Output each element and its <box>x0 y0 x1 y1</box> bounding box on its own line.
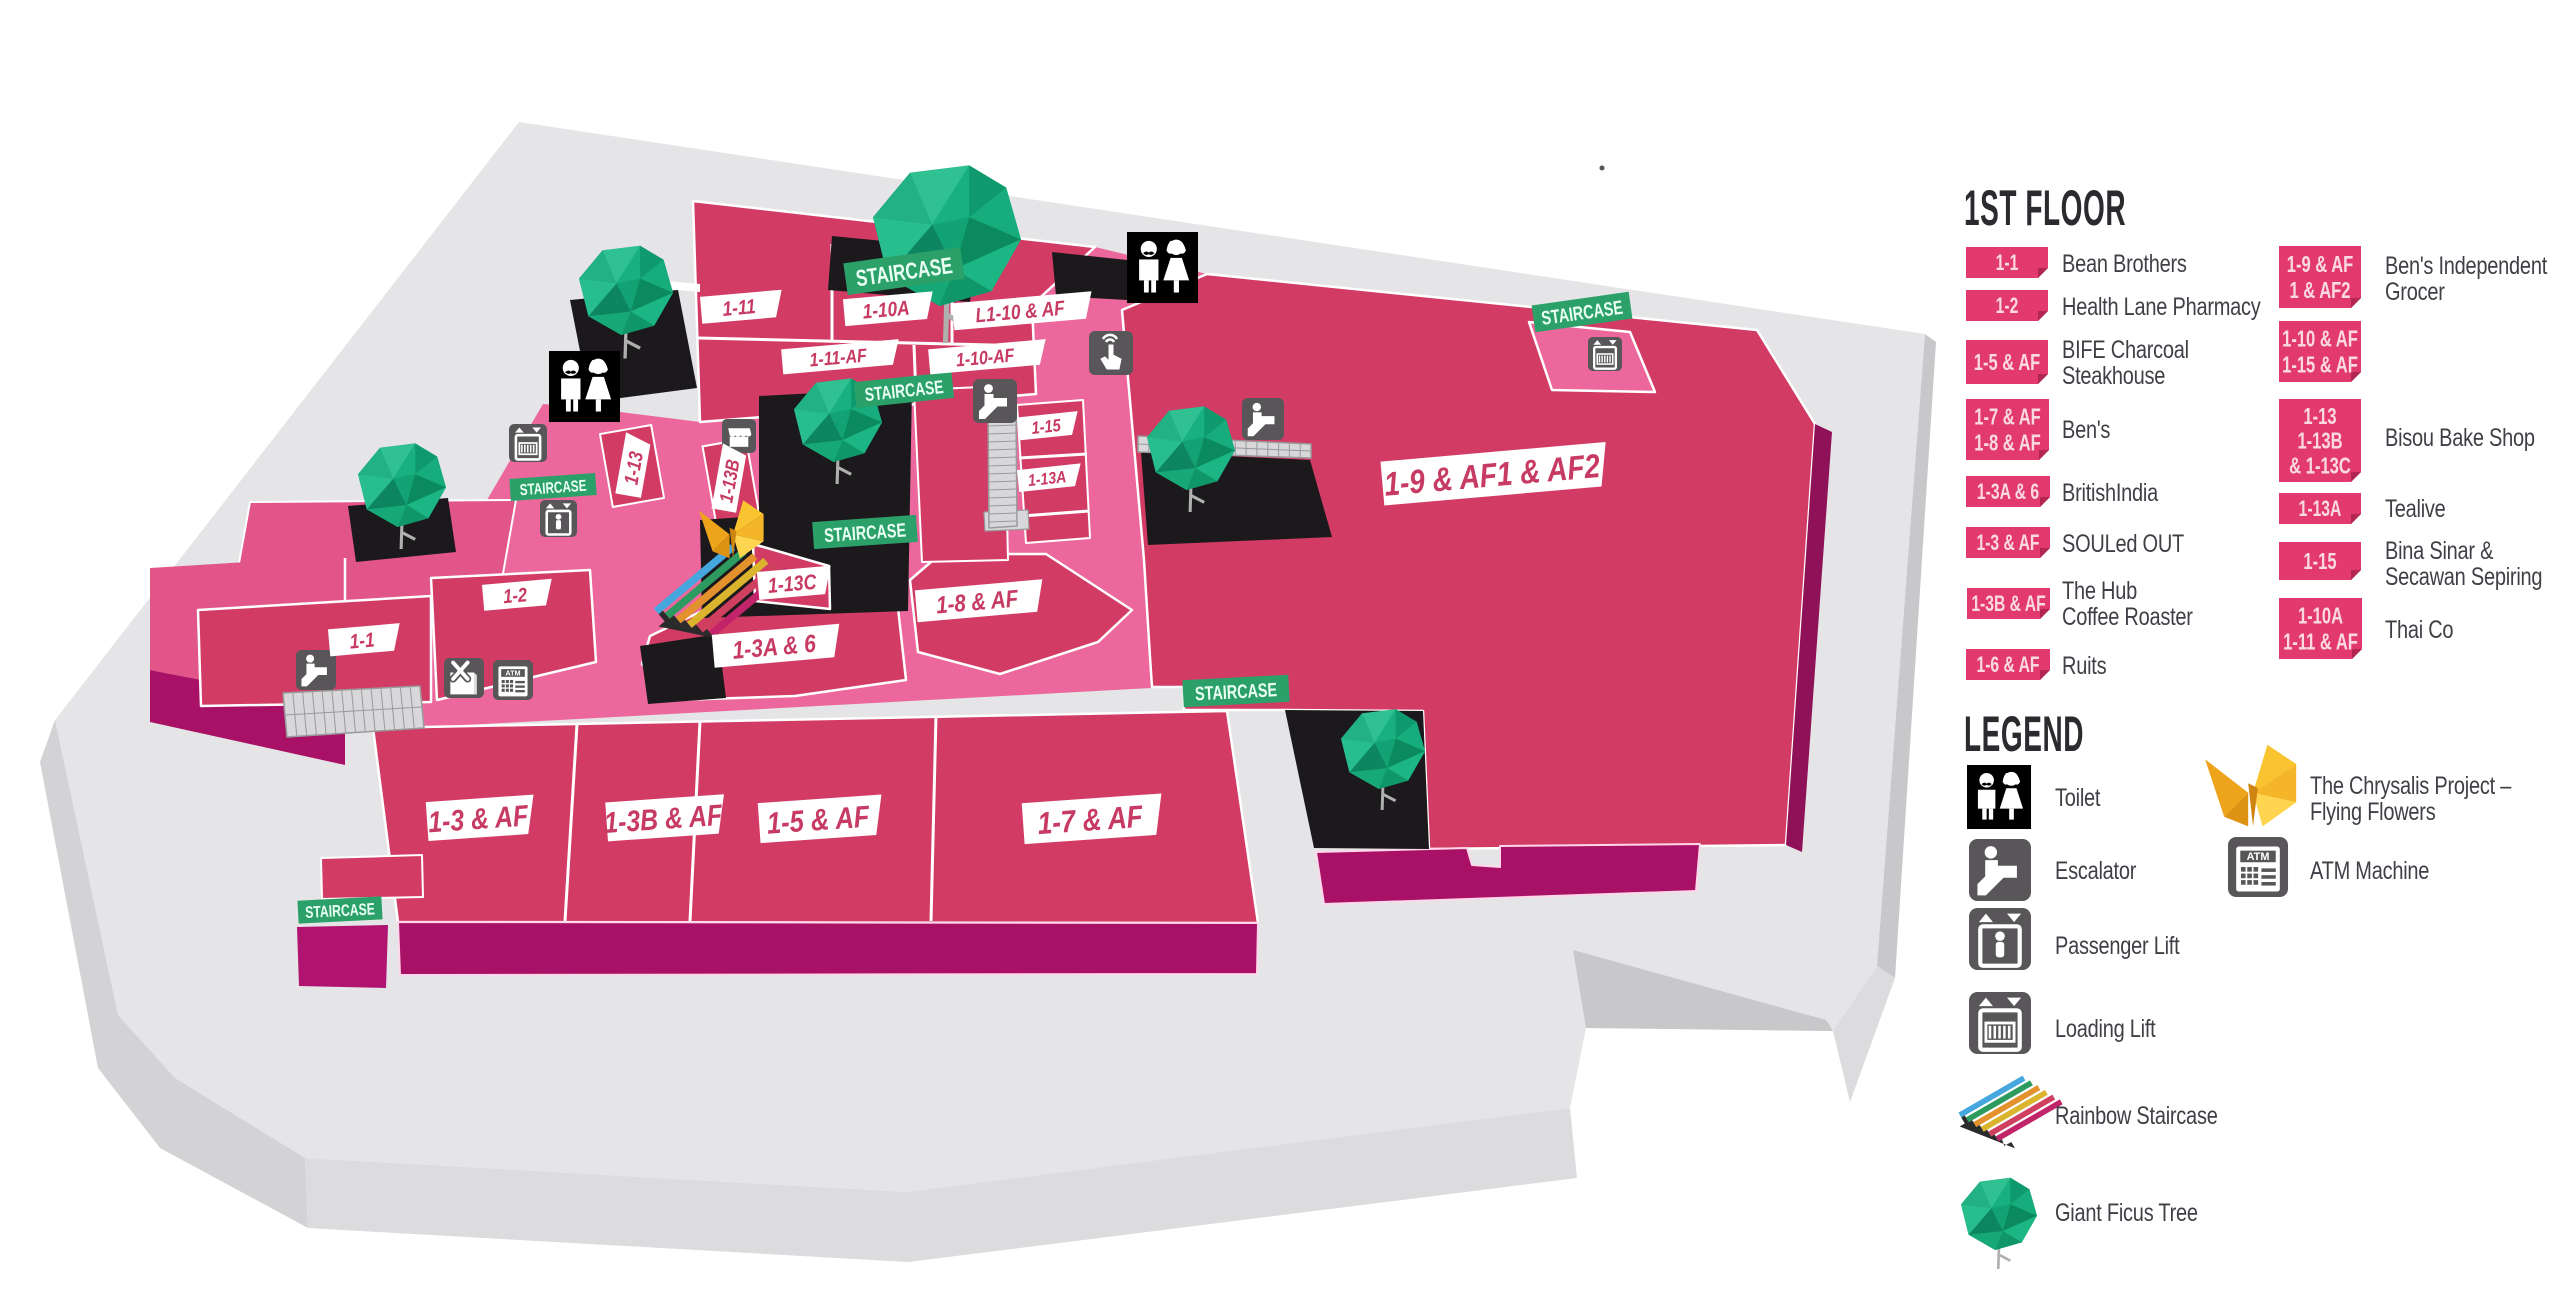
svg-text:1-3A & 6: 1-3A & 6 <box>1977 481 2039 505</box>
svg-text:1-3 & AF: 1-3 & AF <box>427 798 530 839</box>
svg-text:Thai Co: Thai Co <box>2385 616 2453 644</box>
svg-text:1-1: 1-1 <box>1996 252 2019 276</box>
svg-text:SOULed OUT: SOULed OUT <box>2062 530 2184 558</box>
svg-text:STAIRCASE: STAIRCASE <box>1195 679 1278 705</box>
svg-text:Bisou Bake Shop: Bisou Bake Shop <box>2385 424 2535 452</box>
svg-text:1-3B & AF: 1-3B & AF <box>1971 593 2045 617</box>
svg-text:1-9 & AF: 1-9 & AF <box>2287 252 2354 277</box>
svg-text:ATM: ATM <box>2247 851 2270 863</box>
svg-text:1-15: 1-15 <box>2303 549 2336 574</box>
svg-text:1-13: 1-13 <box>2303 404 2336 429</box>
svg-text:Tealive: Tealive <box>2385 495 2446 523</box>
svg-text:1-11: 1-11 <box>722 296 757 322</box>
svg-text:The Chrysalis Project –: The Chrysalis Project – <box>2310 772 2512 800</box>
svg-text:Ben's: Ben's <box>2062 416 2110 444</box>
svg-text:Secawan Sepiring: Secawan Sepiring <box>2385 563 2542 591</box>
svg-text:1-2: 1-2 <box>502 583 528 608</box>
svg-text:Ruits: Ruits <box>2062 652 2106 680</box>
svg-text:BIFE Charcoal: BIFE Charcoal <box>2062 336 2189 364</box>
svg-text:Loading Lift: Loading Lift <box>2055 1015 2156 1043</box>
svg-text:Health Lane Pharmacy: Health Lane Pharmacy <box>2062 293 2261 321</box>
svg-text:Grocer: Grocer <box>2385 278 2445 306</box>
svg-text:1-7 & AF: 1-7 & AF <box>1974 405 2041 430</box>
svg-text:Ben's Independent: Ben's Independent <box>2385 252 2548 280</box>
svg-text:BritishIndia: BritishIndia <box>2062 479 2159 507</box>
svg-text:ATM Machine: ATM Machine <box>2310 857 2429 885</box>
svg-text:Rainbow Staircase: Rainbow Staircase <box>2055 1102 2218 1130</box>
svg-text:1-10A: 1-10A <box>862 297 911 324</box>
svg-text:1-15 & AF: 1-15 & AF <box>2282 353 2358 378</box>
svg-text:STAIRCASE: STAIRCASE <box>305 901 376 923</box>
svg-text:Steakhouse: Steakhouse <box>2062 362 2165 390</box>
svg-text:1-8 & AF: 1-8 & AF <box>1974 431 2041 456</box>
svg-text:1-7 & AF: 1-7 & AF <box>1036 800 1145 842</box>
svg-text:1-10 & AF: 1-10 & AF <box>2282 327 2358 352</box>
svg-text:Coffee Roaster: Coffee Roaster <box>2062 603 2193 631</box>
svg-text:1-1: 1-1 <box>349 629 376 654</box>
svg-text:Escalator: Escalator <box>2055 857 2137 885</box>
svg-text:The Hub: The Hub <box>2062 577 2137 605</box>
svg-text:Bean Brothers: Bean Brothers <box>2062 250 2187 278</box>
svg-text:1-15: 1-15 <box>1030 416 1062 439</box>
svg-text:1-11 & AF: 1-11 & AF <box>2283 630 2358 655</box>
svg-text:1-3 & AF: 1-3 & AF <box>1976 532 2039 556</box>
svg-text:Flying Flowers: Flying Flowers <box>2310 798 2435 826</box>
svg-text:ATM: ATM <box>505 668 520 677</box>
svg-text:1-6 & AF: 1-6 & AF <box>1976 654 2039 678</box>
svg-text:1-13B: 1-13B <box>2297 429 2342 454</box>
svg-text:1-5 & AF: 1-5 & AF <box>1974 351 2041 376</box>
svg-text:1-13C: 1-13C <box>767 570 818 598</box>
svg-text:1-5 & AF: 1-5 & AF <box>766 800 871 841</box>
svg-text:1ST FLOOR: 1ST FLOOR <box>1964 179 2126 236</box>
svg-text:Bina Sinar &: Bina Sinar & <box>2385 537 2493 565</box>
svg-text:LEGEND: LEGEND <box>1964 705 2084 762</box>
svg-text:1-10A: 1-10A <box>2298 604 2343 629</box>
svg-text:1-13A: 1-13A <box>2299 498 2342 522</box>
svg-text:& 1-13C: & 1-13C <box>2289 454 2351 479</box>
svg-text:1-2: 1-2 <box>1996 295 2019 319</box>
svg-text:1 & AF2: 1 & AF2 <box>2289 279 2350 304</box>
svg-text:Passenger Lift: Passenger Lift <box>2055 932 2180 960</box>
svg-text:Toilet: Toilet <box>2055 784 2101 812</box>
svg-text:Giant Ficus Tree: Giant Ficus Tree <box>2055 1199 2198 1227</box>
